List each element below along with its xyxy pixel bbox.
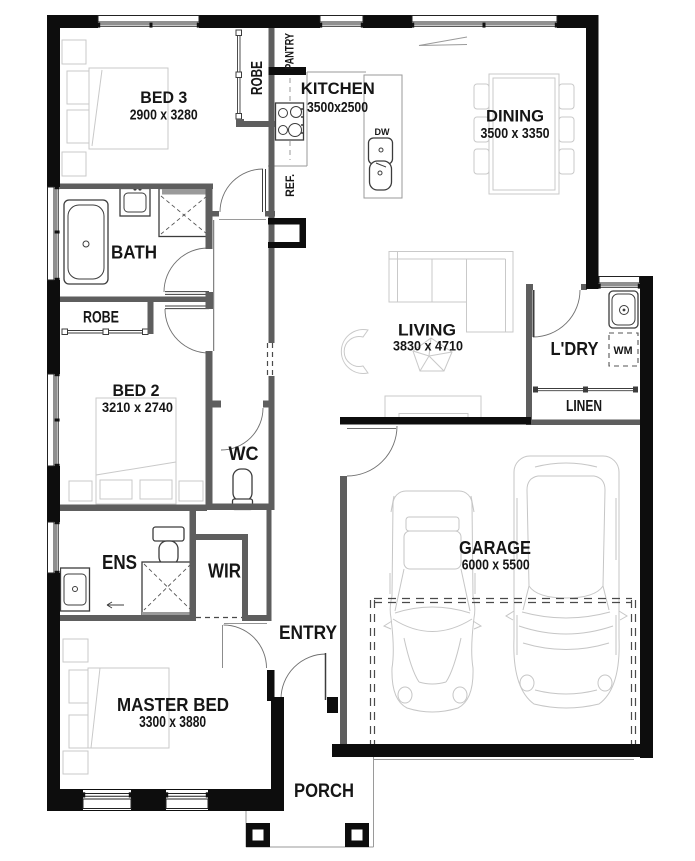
svg-text:PORCH: PORCH [294,781,354,802]
svg-text:ENS: ENS [102,552,137,574]
svg-text:WM: WM [614,345,633,357]
svg-text:ENTRY: ENTRY [279,622,337,644]
svg-text:L'DRY: L'DRY [551,339,599,359]
svg-text:3300 x 3880: 3300 x 3880 [139,714,206,731]
svg-text:GARAGE: GARAGE [459,538,531,558]
svg-text:3830 x 4710: 3830 x 4710 [393,338,463,354]
svg-text:3500x2500: 3500x2500 [307,99,368,116]
svg-text:2900 x 3280: 2900 x 3280 [130,108,198,124]
svg-text:WC: WC [229,444,259,465]
svg-text:3210 x 2740: 3210 x 2740 [102,399,173,415]
svg-text:3500 x 3350: 3500 x 3350 [481,125,550,142]
svg-text:DINING: DINING [486,107,544,126]
svg-text:BED 2: BED 2 [113,382,160,400]
svg-text:6000 x 5500: 6000 x 5500 [462,557,530,574]
svg-text:KITCHEN: KITCHEN [301,79,375,98]
svg-text:BED 3: BED 3 [140,88,187,107]
svg-text:ROBE: ROBE [249,61,266,95]
svg-text:PANTRY: PANTRY [283,33,297,70]
svg-text:WIR: WIR [208,561,241,583]
svg-text:ROBE: ROBE [83,308,119,327]
svg-text:BATH: BATH [111,243,157,263]
svg-text:MASTER BED: MASTER BED [117,695,229,715]
svg-text:DW: DW [375,127,390,138]
svg-text:REF.: REF. [283,174,297,197]
svg-text:LINEN: LINEN [566,398,602,415]
